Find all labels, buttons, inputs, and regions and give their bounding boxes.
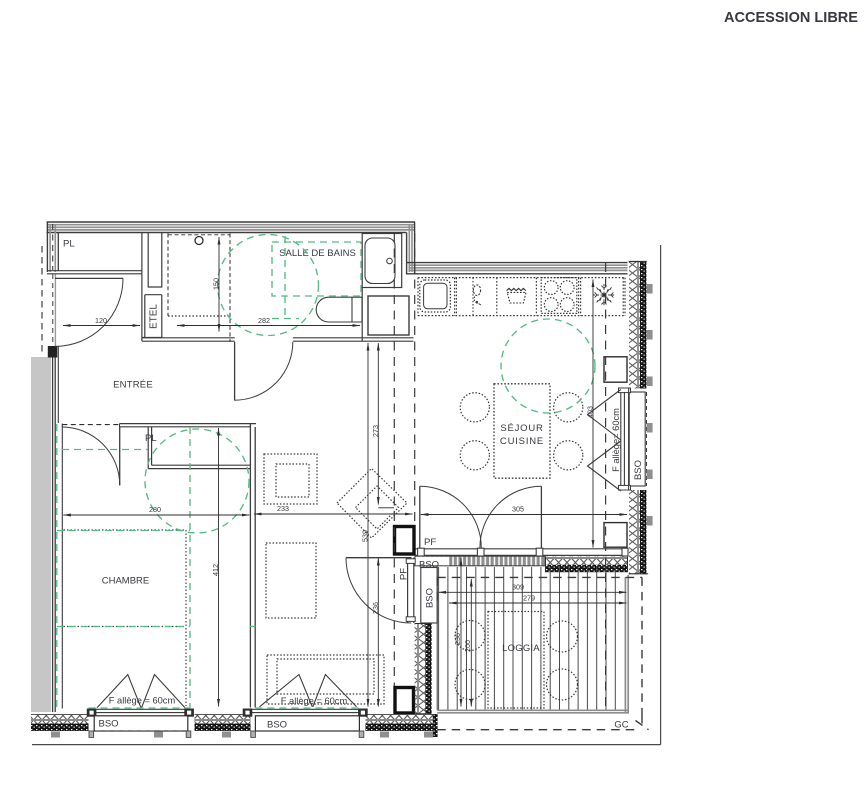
svg-text:150: 150 xyxy=(212,278,221,290)
svg-text:BSO: BSO xyxy=(633,460,644,480)
svg-text:CHAMBRE: CHAMBRE xyxy=(102,576,150,587)
svg-text:BSO: BSO xyxy=(267,720,287,731)
svg-text:403: 403 xyxy=(585,406,594,418)
svg-text:412: 412 xyxy=(211,564,220,576)
svg-text:233: 233 xyxy=(277,504,289,513)
svg-text:305: 305 xyxy=(512,505,524,514)
svg-text:200: 200 xyxy=(463,640,472,652)
svg-text:SALLE DE BAINS: SALLE DE BAINS xyxy=(279,248,356,259)
svg-text:309: 309 xyxy=(512,582,524,591)
svg-text:282: 282 xyxy=(258,316,270,325)
svg-text:236: 236 xyxy=(453,633,462,645)
svg-text:F allège = 60cm: F allège = 60cm xyxy=(281,696,348,706)
svg-text:PL: PL xyxy=(145,433,157,444)
svg-text:PF: PF xyxy=(424,537,436,548)
svg-text:236: 236 xyxy=(371,602,380,614)
svg-text:SÉJOUR: SÉJOUR xyxy=(500,423,543,434)
svg-text:F allège = 60cm: F allège = 60cm xyxy=(109,696,176,706)
svg-text:ENTRÉE: ENTRÉE xyxy=(113,380,153,391)
svg-text:279: 279 xyxy=(523,593,535,602)
svg-text:120: 120 xyxy=(95,316,107,325)
svg-text:GC: GC xyxy=(614,720,628,731)
svg-text:BSO: BSO xyxy=(425,588,436,608)
svg-text:280: 280 xyxy=(149,505,161,514)
svg-text:539: 539 xyxy=(360,530,369,542)
svg-text:PF: PF xyxy=(399,568,410,580)
svg-text:F allège= 60cm: F allège= 60cm xyxy=(611,408,621,472)
svg-text:PL: PL xyxy=(63,239,75,250)
svg-text:273: 273 xyxy=(371,425,380,437)
svg-text:CUISINE: CUISINE xyxy=(500,436,544,447)
svg-text:ACCESSION LIBRE: ACCESSION LIBRE xyxy=(724,9,858,26)
svg-text:LOGGIA: LOGGIA xyxy=(502,643,540,654)
svg-text:BSO: BSO xyxy=(99,719,119,730)
svg-text:ETEL: ETEL xyxy=(149,304,160,329)
